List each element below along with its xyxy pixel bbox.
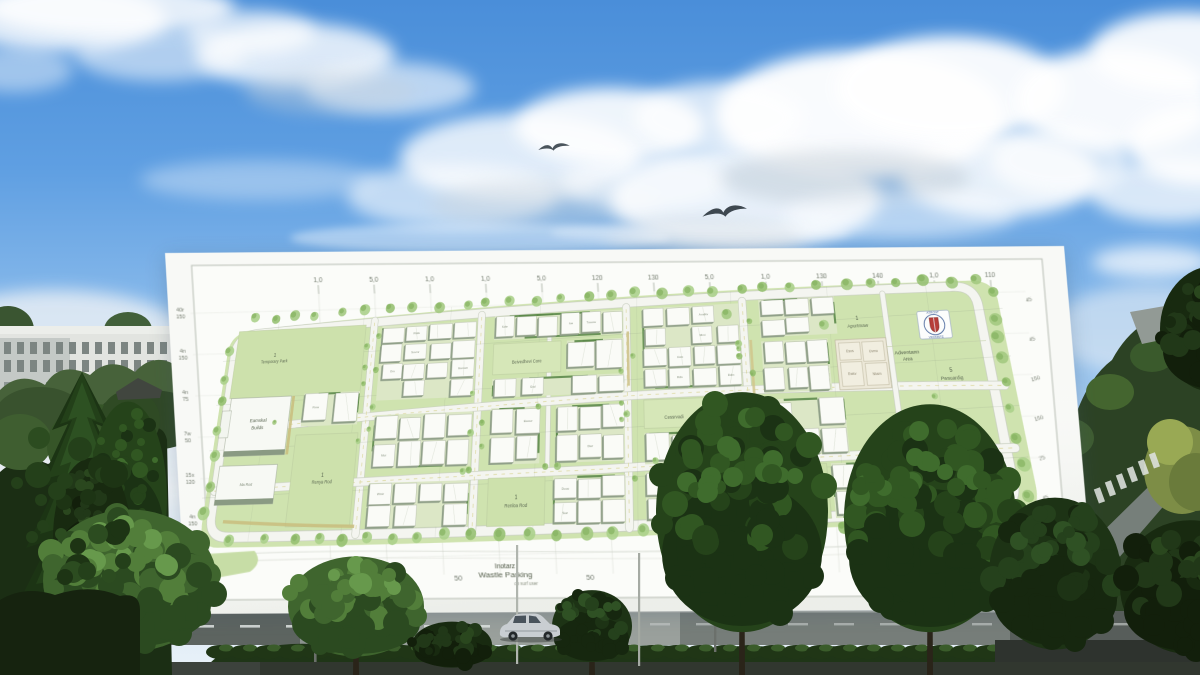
svg-text:Cessrvadi: Cessrvadi (664, 414, 684, 420)
svg-text:1,0: 1,0 (425, 276, 435, 283)
svg-text:VRONWTE: VRONWTE (929, 335, 945, 339)
svg-text:50: 50 (185, 438, 191, 444)
svg-text:70: 70 (804, 573, 813, 580)
svg-text:1,0: 1,0 (761, 274, 771, 281)
svg-text:150: 150 (178, 356, 187, 362)
svg-text:Ma Rod: Ma Rod (239, 482, 252, 487)
svg-text:1,0: 1,0 (481, 276, 491, 283)
svg-text:Pvwvrg Rod: Pvwvrg Rod (964, 463, 990, 469)
svg-text:Rwnw Kid: Rwnw Kid (944, 491, 967, 498)
svg-text:Sue: Sue (562, 510, 568, 515)
svg-text:140: 140 (872, 273, 884, 280)
svg-text:110: 110 (985, 272, 996, 279)
svg-text:130: 130 (648, 275, 660, 282)
svg-text:40r: 40r (176, 308, 184, 314)
svg-text:Wastle Parking: Wastle Parking (478, 570, 532, 579)
svg-text:Rmw: Rmw (312, 405, 319, 410)
svg-text:130: 130 (816, 273, 828, 280)
svg-text:Builds: Builds (251, 424, 264, 430)
svg-text:Pwsuardig: Pwsuardig (940, 374, 963, 381)
svg-text:Uvmo: Uvmo (869, 348, 879, 353)
svg-text:5,0: 5,0 (369, 277, 379, 284)
svg-text:Ewkv: Ewkv (848, 371, 857, 376)
svg-text:on surf user: on surf user (514, 581, 539, 586)
svg-text:4n: 4n (179, 349, 185, 355)
svg-text:1,0: 1,0 (313, 277, 323, 284)
svg-text:30: 30 (688, 574, 697, 581)
svg-text:Eamskal: Eamskal (249, 417, 267, 423)
svg-text:75: 75 (182, 397, 188, 403)
svg-text:Uwe: Uwe (677, 354, 684, 359)
svg-text:Rnu: Rnu (778, 412, 785, 417)
svg-text:Esd: Esd (530, 384, 536, 389)
svg-text:Renya Rod: Renya Rod (311, 480, 332, 486)
svg-text:Omw: Omw (655, 481, 663, 486)
svg-text:ATRONT: ATRONT (926, 310, 940, 315)
svg-text:Rds: Rds (677, 374, 683, 379)
svg-text:120: 120 (592, 275, 604, 282)
svg-text:Mmd: Mmd (680, 479, 688, 484)
svg-text:120: 120 (186, 480, 196, 486)
svg-text:Apurtmaw: Apurtmaw (847, 322, 869, 329)
svg-text:Area: Area (903, 357, 914, 362)
svg-text:Rwsogdig: Rwsogdig (901, 419, 923, 426)
svg-text:150: 150 (176, 314, 185, 320)
svg-text:Mmi: Mmi (699, 332, 706, 337)
svg-text:5,0: 5,0 (705, 274, 715, 281)
svg-text:Nksm: Nksm (872, 371, 882, 376)
svg-text:Ewour: Ewour (524, 418, 533, 423)
svg-text:Esos: Esos (846, 348, 855, 353)
svg-text:Sdte: Sdte (502, 324, 509, 329)
svg-text:40: 40 (936, 573, 945, 580)
svg-text:15x: 15x (185, 473, 195, 479)
svg-text:Kknr: Kknr (780, 439, 787, 444)
svg-text:Ddm: Ddm (728, 372, 736, 377)
svg-text:Renloa Rod: Renloa Rod (504, 503, 527, 509)
svg-text:Ioa: Ioa (569, 321, 574, 326)
svg-text:Amdkv: Amdkv (699, 312, 709, 317)
svg-text:Wmir: Wmir (377, 491, 385, 496)
svg-text:1,0: 1,0 (929, 272, 939, 279)
svg-text:Adventann: Adventann (894, 349, 920, 356)
svg-text:Dwr: Dwr (587, 443, 593, 448)
svg-text:Sovmr: Sovmr (411, 350, 420, 355)
svg-text:7w: 7w (184, 431, 191, 437)
svg-text:Eumwn: Eumwn (458, 365, 469, 370)
svg-text:70: 70 (361, 576, 369, 583)
svg-text:Mot: Mot (381, 453, 387, 458)
svg-text:5,0: 5,0 (537, 275, 547, 282)
svg-text:Oru: Oru (390, 369, 396, 374)
svg-text:Dooo: Dooo (562, 486, 570, 491)
svg-text:4n: 4n (192, 556, 198, 562)
svg-text:Tuwow: Tuwow (587, 320, 596, 325)
svg-text:4n: 4n (182, 390, 188, 396)
svg-text:150: 150 (190, 563, 200, 569)
svg-text:4n: 4n (189, 514, 195, 520)
svg-text:Rktik: Rktik (413, 331, 420, 336)
svg-text:50: 50 (586, 575, 595, 582)
svg-text:50: 50 (454, 575, 462, 582)
svg-text:Fwrsrivoi Res: Fwrsrivoi Res (786, 493, 815, 499)
